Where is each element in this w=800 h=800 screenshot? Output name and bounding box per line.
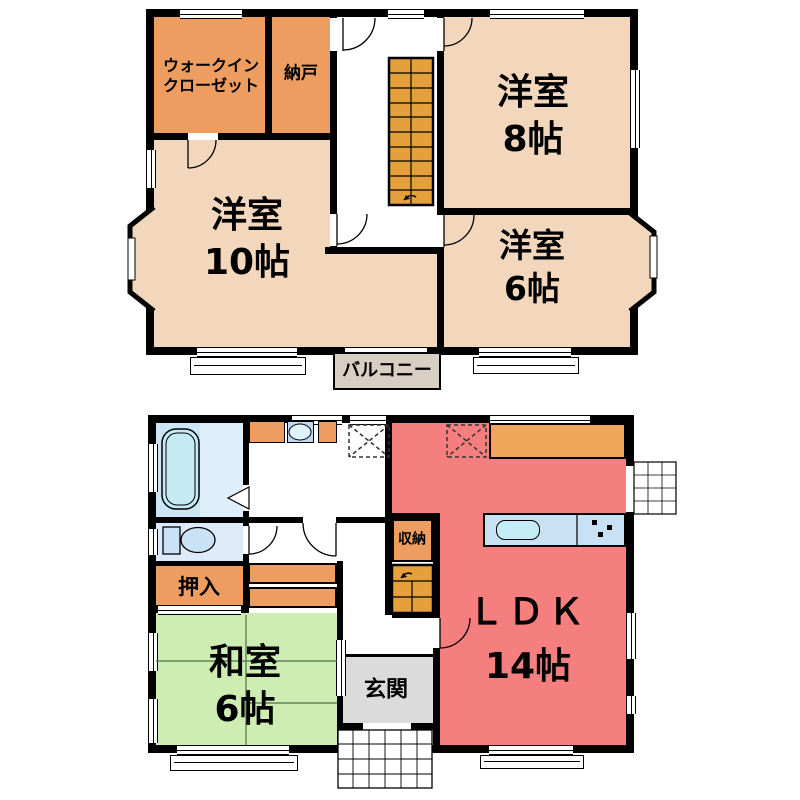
wall xyxy=(156,517,392,523)
bathroom xyxy=(156,423,200,517)
door-opening xyxy=(303,517,336,523)
stairs-1f-icon xyxy=(392,565,433,613)
genkan-label: 玄関 xyxy=(364,676,408,704)
wall xyxy=(337,654,440,657)
wall xyxy=(437,17,444,347)
washroom-counter-left xyxy=(249,421,285,443)
kitchen-back-counter xyxy=(489,423,626,459)
walk-in-closet-label: ウォークイン クローゼット xyxy=(163,56,259,96)
door-opening xyxy=(433,618,440,648)
window xyxy=(148,529,158,555)
door-opening xyxy=(330,214,337,246)
door-opening xyxy=(363,723,411,730)
door-opening xyxy=(437,18,444,51)
window-sill xyxy=(480,755,584,769)
wall xyxy=(154,133,337,140)
window xyxy=(626,613,636,659)
window xyxy=(146,150,156,188)
window xyxy=(177,745,289,755)
western-room-10-label: 洋室 10帖 xyxy=(204,193,290,287)
window xyxy=(630,70,640,148)
wall xyxy=(385,423,392,615)
sliding-door xyxy=(336,640,346,696)
western-room-6-label: 洋室 6帖 xyxy=(499,225,565,311)
window-sill xyxy=(473,357,579,374)
washroom-counter-right xyxy=(318,421,337,443)
washbasin-unit xyxy=(287,421,314,443)
hallway-2f xyxy=(337,17,437,247)
ldk-label: ＬＤＫ 14帖 xyxy=(468,586,588,694)
tatami-closet-shelf-bottom xyxy=(248,587,337,608)
tatami-closet-shelf-top xyxy=(248,563,337,584)
door-opening xyxy=(243,485,249,511)
shuno-label: 収納 xyxy=(398,531,426,549)
window xyxy=(180,9,242,19)
oshiire-label: 押入 xyxy=(178,574,220,600)
door-opening xyxy=(330,18,337,51)
window xyxy=(148,699,158,743)
window xyxy=(490,9,584,19)
window xyxy=(148,444,158,492)
window-sill xyxy=(170,755,298,771)
window xyxy=(148,633,158,671)
wall xyxy=(156,561,249,566)
western-room-8-label: 洋室 8帖 xyxy=(497,70,569,164)
kitchen-sink xyxy=(496,520,540,540)
entrance-porch-steps xyxy=(338,730,432,788)
window-sill xyxy=(190,357,306,375)
window xyxy=(197,347,297,357)
door-opening xyxy=(626,466,634,512)
toilet-room xyxy=(156,521,243,561)
wall xyxy=(392,613,433,618)
wall xyxy=(630,9,638,355)
sliding-door xyxy=(158,605,241,615)
washitsu-label: 和室 6帖 xyxy=(209,640,281,734)
door-opening xyxy=(243,526,249,554)
wall xyxy=(325,247,444,254)
wall xyxy=(265,17,272,133)
kitchen-door-steps xyxy=(634,462,676,514)
nando-label: 納戸 xyxy=(284,63,318,84)
balcony-label: バルコニー xyxy=(342,360,432,383)
door-opening xyxy=(188,133,218,140)
floor-plan: ウォークイン クローゼット 納戸 洋室 8帖 洋室 10帖 洋室 6帖 バルコニ… xyxy=(0,0,800,800)
bathroom-drying-area xyxy=(200,423,243,517)
window xyxy=(626,696,636,714)
window xyxy=(388,9,424,19)
window xyxy=(479,347,571,357)
western-room-10-ext xyxy=(325,254,437,347)
door-opening xyxy=(437,215,444,247)
window xyxy=(489,745,573,755)
wall xyxy=(444,208,630,215)
window xyxy=(350,415,386,425)
